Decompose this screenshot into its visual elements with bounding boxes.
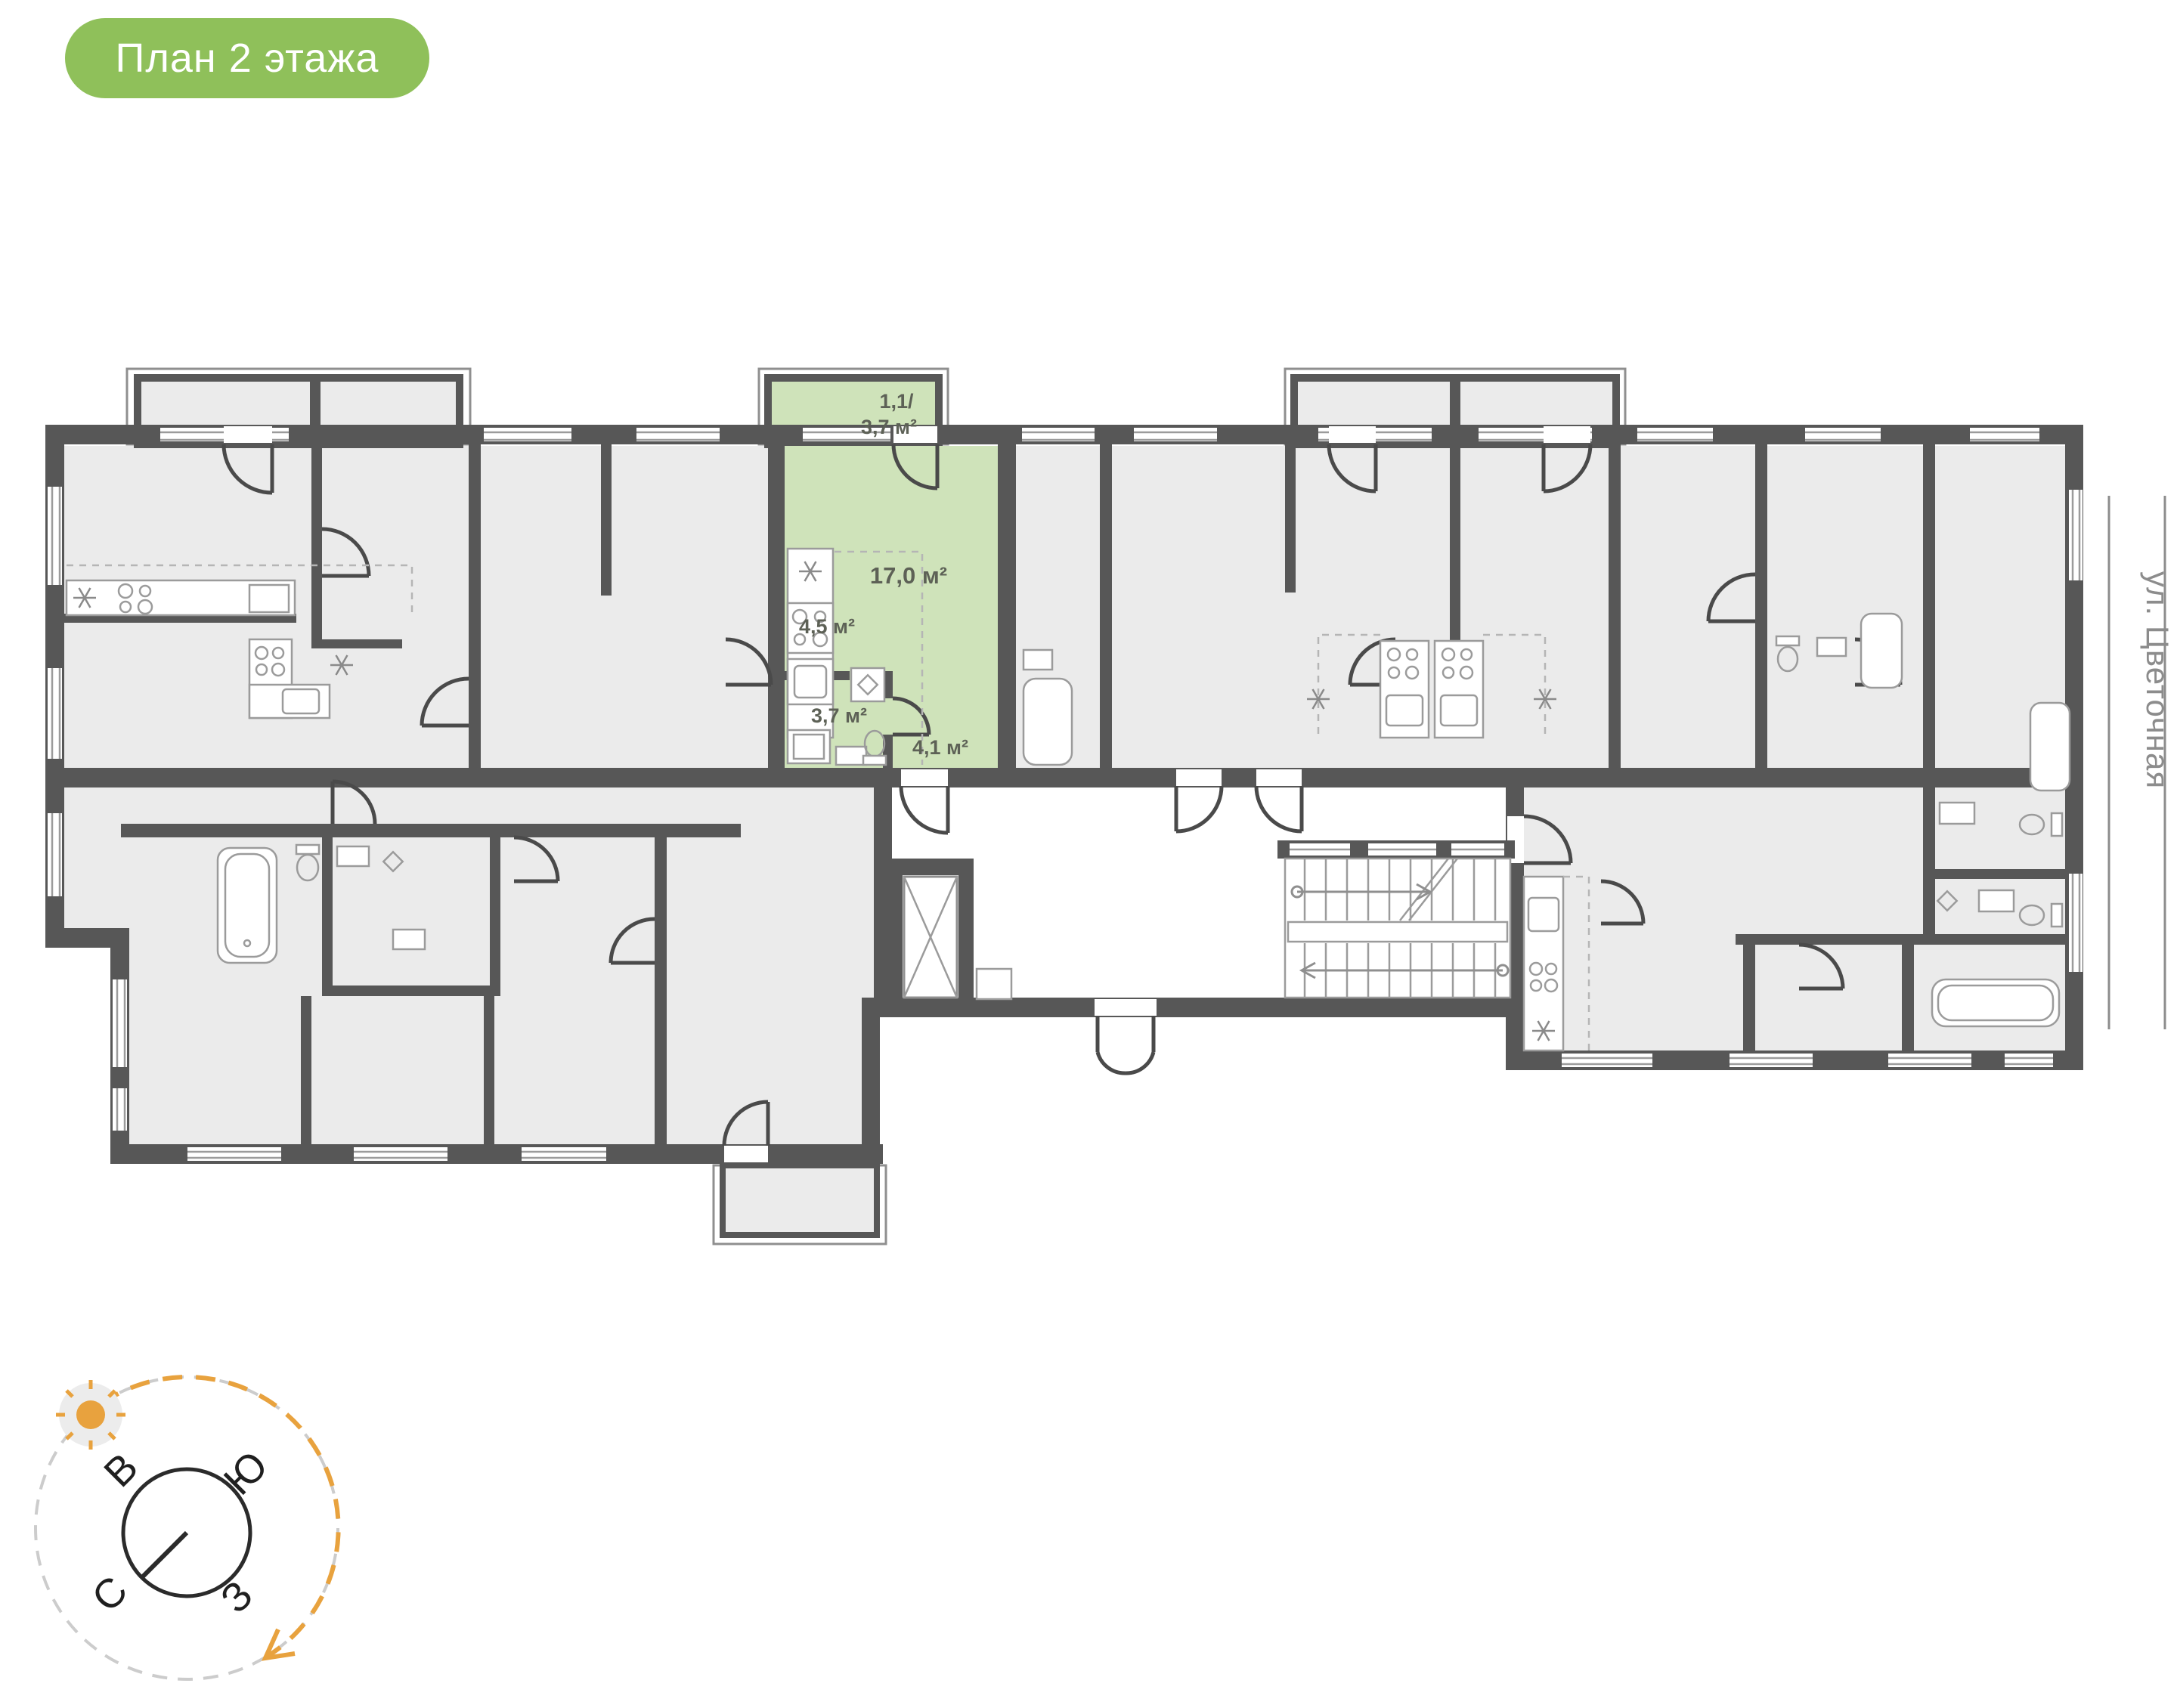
unit-bathroom-area-label: 3,7 м² <box>811 704 867 727</box>
floor-badge-label: План 2 этажа <box>116 36 379 81</box>
compass-north-label: С <box>83 1567 136 1620</box>
street-label: ул. Цветочная <box>2140 571 2175 789</box>
compass: В Ю С З <box>36 1377 339 1679</box>
unit-living-area-label: 17,0 м² <box>870 562 947 589</box>
floor-plan: 1,1/ 3,7 м² 17,0 м² 4,5 м² 3,7 м² 4,1 м² <box>45 369 2083 1244</box>
elevator <box>889 859 1011 999</box>
unit-balcony-area-label: 1,1/ <box>879 390 914 413</box>
unit-balcony-area-label2: 3,7 м² <box>861 416 917 438</box>
unit-kitchen-area-label: 4,5 м² <box>799 615 855 638</box>
street: ул. Цветочная <box>2109 496 2175 1029</box>
balcony-bottom <box>714 1165 886 1244</box>
floor-badge: План 2 этажа <box>65 18 429 98</box>
unit-hall-area-label: 4,1 м² <box>912 736 968 759</box>
stairwell <box>1277 840 1515 998</box>
floor-plan-page: 1,1/ 3,7 м² 17,0 м² 4,5 м² 3,7 м² 4,1 м²… <box>0 0 2177 1708</box>
